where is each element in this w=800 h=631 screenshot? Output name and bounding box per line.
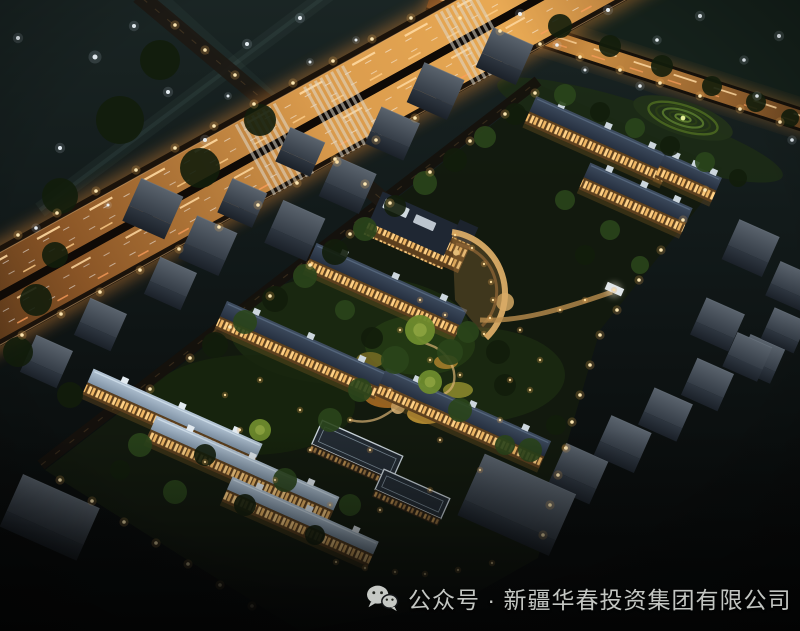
promo-image: 公众号 · 新疆华春投资集团有限公司	[0, 0, 800, 631]
scene-rendering	[0, 0, 800, 631]
wechat-icon	[366, 584, 399, 613]
vignette	[0, 0, 800, 631]
caption: 公众号 · 新疆华春投资集团有限公司	[366, 581, 791, 615]
caption-text: 公众号 · 新疆华春投资集团有限公司	[408, 581, 791, 615]
